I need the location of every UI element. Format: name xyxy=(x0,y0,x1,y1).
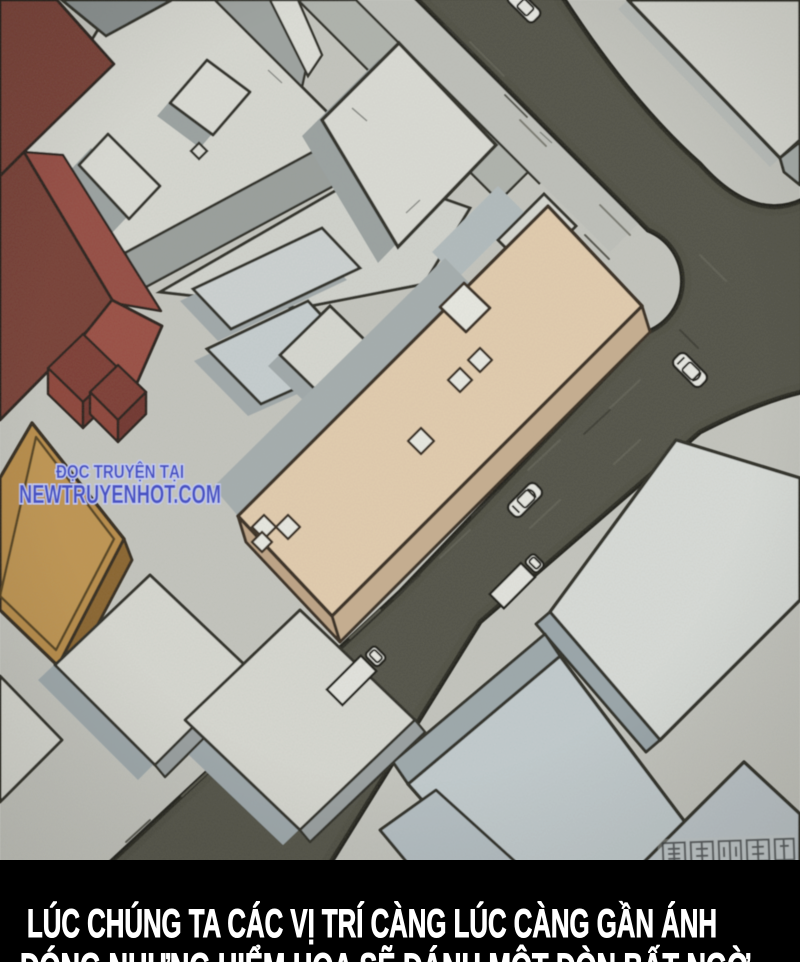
svg-text:ĐÓNG NHƯNG HIỂM HỌA SẼ ĐÁNH MỘ: ĐÓNG NHƯNG HIỂM HỌA SẼ ĐÁNH MỘT ĐÒN BẤT … xyxy=(20,943,751,962)
svg-text:LÚC CHÚNG TA CÁC VỊ TRÍ CÀNG L: LÚC CHÚNG TA CÁC VỊ TRÍ CÀNG LÚC CÀNG GẦ… xyxy=(27,900,717,946)
svg-text:NEWTRUYENHOT.COM: NEWTRUYENHOT.COM xyxy=(19,479,221,509)
